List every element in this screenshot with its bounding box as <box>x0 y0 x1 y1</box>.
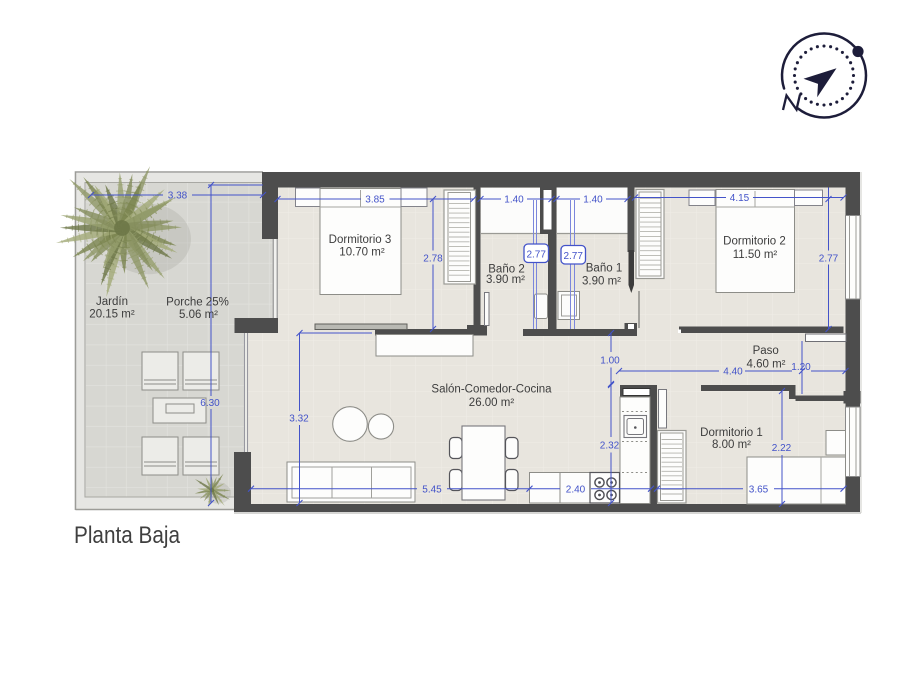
svg-text:2.77: 2.77 <box>526 249 546 260</box>
svg-text:5.06 m²: 5.06 m² <box>179 309 218 321</box>
svg-text:4.60 m²: 4.60 m² <box>747 359 786 371</box>
svg-text:Planta Baja: Planta Baja <box>74 522 181 549</box>
svg-text:3.90 m²: 3.90 m² <box>486 274 525 286</box>
svg-text:3.85: 3.85 <box>365 195 385 206</box>
svg-text:Baño 1: Baño 1 <box>586 263 622 275</box>
svg-text:20.15 m²: 20.15 m² <box>89 309 135 321</box>
svg-text:1.40: 1.40 <box>504 195 524 206</box>
svg-text:11.50 m²: 11.50 m² <box>733 249 778 261</box>
svg-text:3.65: 3.65 <box>749 484 769 495</box>
svg-text:4.40: 4.40 <box>723 367 743 378</box>
svg-text:Dormitorio 3: Dormitorio 3 <box>329 234 392 246</box>
svg-text:Jardín: Jardín <box>96 296 128 308</box>
svg-text:3.32: 3.32 <box>289 414 309 425</box>
svg-text:2.77: 2.77 <box>563 251 583 262</box>
svg-text:Porche 25%: Porche 25% <box>166 297 229 309</box>
svg-text:2.22: 2.22 <box>772 443 792 454</box>
svg-text:6.30: 6.30 <box>200 398 220 409</box>
svg-text:2.78: 2.78 <box>423 254 443 265</box>
svg-text:1.40: 1.40 <box>583 195 603 206</box>
svg-text:4.15: 4.15 <box>730 193 750 204</box>
svg-text:2.32: 2.32 <box>600 441 620 452</box>
svg-text:5.45: 5.45 <box>422 484 442 495</box>
svg-text:1.20: 1.20 <box>791 362 811 373</box>
svg-text:1.00: 1.00 <box>600 356 620 367</box>
svg-text:26.00 m²: 26.00 m² <box>469 397 515 409</box>
svg-text:3.38: 3.38 <box>168 191 188 202</box>
svg-text:Dormitorio 2: Dormitorio 2 <box>723 236 786 248</box>
svg-text:Salón-Comedor-Cocina: Salón-Comedor-Cocina <box>431 384 552 396</box>
svg-text:10.70 m²: 10.70 m² <box>339 247 385 259</box>
svg-text:8.00 m²: 8.00 m² <box>712 439 751 451</box>
svg-text:3.90 m²: 3.90 m² <box>582 276 621 288</box>
svg-text:2.40: 2.40 <box>566 484 586 495</box>
svg-text:2.77: 2.77 <box>819 254 839 265</box>
svg-text:Dormitorio 1: Dormitorio 1 <box>700 427 763 439</box>
svg-text:Paso: Paso <box>753 345 779 357</box>
